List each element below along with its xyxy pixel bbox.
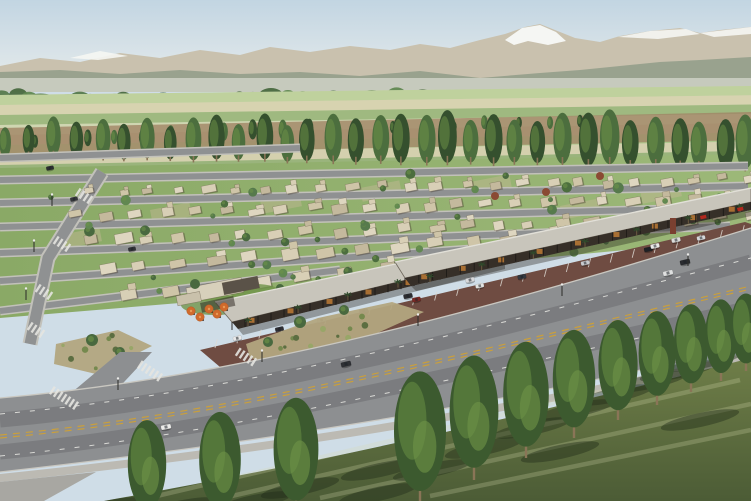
house-roof bbox=[334, 227, 348, 239]
aerial-community-rendering: Aerial 3D architectural rendering of a d… bbox=[0, 0, 751, 501]
house-wing bbox=[320, 180, 326, 185]
yard-tree-highlight bbox=[417, 246, 420, 249]
house-wing bbox=[289, 241, 298, 249]
poplar-trunk bbox=[238, 155, 240, 161]
house-wing bbox=[662, 191, 670, 198]
poplar-trunk bbox=[426, 157, 428, 166]
poplar-highlight bbox=[486, 120, 496, 152]
shrub bbox=[106, 336, 111, 341]
storefront-window-glow bbox=[575, 241, 581, 246]
poplar-highlight bbox=[555, 118, 565, 151]
storefront-window-glow bbox=[652, 224, 658, 229]
house-wing bbox=[601, 191, 607, 197]
poplar-trunk bbox=[470, 157, 472, 165]
clubhouse-tree bbox=[190, 279, 200, 289]
house-wing bbox=[434, 231, 442, 238]
yard-tree-highlight bbox=[472, 187, 475, 190]
yard-tree-highlight bbox=[243, 234, 247, 238]
shrub bbox=[61, 344, 64, 347]
poplar-highlight bbox=[187, 122, 196, 149]
storefront-window-glow bbox=[729, 207, 735, 212]
poplar-highlight bbox=[482, 117, 486, 126]
yard-tree-highlight bbox=[373, 256, 376, 259]
house-wing bbox=[167, 201, 174, 207]
poplar-trunk bbox=[514, 157, 516, 165]
poplar-highlight bbox=[47, 121, 55, 146]
yard-tree-highlight bbox=[141, 227, 145, 231]
umbrella-top bbox=[199, 316, 201, 318]
house-wing bbox=[88, 184, 93, 188]
shrub bbox=[283, 345, 286, 348]
streetlight-head bbox=[117, 377, 119, 379]
storefront-window-glow bbox=[366, 290, 372, 295]
crosswalk bbox=[137, 360, 163, 381]
poplar-highlight bbox=[393, 119, 403, 150]
umbrella-top bbox=[216, 313, 218, 315]
shrub bbox=[278, 346, 283, 351]
poplar-trunk bbox=[380, 156, 382, 164]
yard-tree-highlight bbox=[229, 241, 232, 244]
poplar-highlight bbox=[548, 118, 551, 126]
poplar-highlight bbox=[577, 116, 580, 124]
storefront-window-glow bbox=[327, 299, 333, 304]
poplar-trunk bbox=[400, 156, 402, 165]
poplar-highlight bbox=[673, 124, 683, 155]
poplar-highlight bbox=[718, 125, 728, 156]
scene-svg bbox=[0, 0, 751, 501]
entry-monument bbox=[670, 218, 676, 234]
yard-tree-highlight bbox=[614, 184, 619, 189]
car-glass bbox=[164, 425, 168, 429]
storefront-window-glow bbox=[537, 249, 543, 254]
poplar-highlight bbox=[508, 124, 517, 152]
yard-tree-highlight bbox=[549, 198, 551, 200]
yard-tree-highlight bbox=[407, 170, 412, 175]
poplar-highlight bbox=[692, 127, 701, 156]
yard-tree-highlight bbox=[151, 275, 153, 277]
red-leaf-tree bbox=[596, 172, 604, 180]
yard-tree-highlight bbox=[49, 195, 51, 197]
yard-tree-highlight bbox=[342, 249, 345, 252]
house-roof bbox=[572, 177, 583, 187]
poplar-trunk bbox=[447, 156, 449, 165]
streetlight-head bbox=[33, 239, 35, 241]
house bbox=[572, 176, 584, 187]
house-wing bbox=[562, 213, 570, 219]
yard-tree-highlight bbox=[316, 277, 318, 279]
house-wing bbox=[429, 197, 436, 203]
red-leaf-tree bbox=[491, 192, 499, 200]
poplar-highlight bbox=[326, 119, 336, 150]
poplar-trunk bbox=[287, 157, 289, 164]
poplar-highlight bbox=[737, 120, 748, 155]
yard-tree-highlight bbox=[86, 223, 89, 226]
yard-tree-highlight bbox=[503, 173, 506, 176]
shrub bbox=[359, 314, 365, 320]
yard-tree-highlight bbox=[211, 214, 213, 216]
storefront-window-glow bbox=[613, 232, 619, 237]
poplar-highlight bbox=[0, 131, 6, 150]
poplar-crown-light bbox=[652, 346, 669, 383]
yard-tree-highlight bbox=[280, 270, 284, 274]
poplar-highlight bbox=[439, 116, 449, 150]
house-wing bbox=[368, 199, 375, 205]
yard-tree-highlight bbox=[563, 183, 568, 188]
car-glass bbox=[49, 167, 52, 170]
car-glass bbox=[131, 248, 134, 251]
house-wing bbox=[607, 176, 613, 182]
shrub bbox=[348, 326, 353, 331]
shrub bbox=[82, 346, 88, 352]
shrub bbox=[362, 322, 369, 329]
house-roof bbox=[209, 233, 220, 243]
yard-tree-highlight bbox=[122, 196, 127, 201]
house-wing bbox=[467, 177, 472, 182]
shrub bbox=[320, 326, 326, 332]
umbrella-top bbox=[223, 306, 225, 308]
poplar-highlight bbox=[118, 128, 125, 151]
shrub bbox=[336, 335, 339, 338]
poplar-crown-light bbox=[290, 440, 310, 485]
poplar-highlight bbox=[71, 126, 78, 149]
umbrella-top bbox=[208, 308, 210, 310]
poplar-highlight bbox=[580, 118, 591, 152]
house-wing bbox=[694, 188, 701, 195]
streetlight-head bbox=[261, 349, 263, 351]
poplar-highlight bbox=[141, 122, 149, 148]
poplar-highlight bbox=[601, 115, 612, 150]
poplar-highlight bbox=[300, 123, 309, 150]
yard-tree-highlight bbox=[315, 237, 318, 240]
streetlight-head bbox=[51, 193, 53, 195]
shrub bbox=[94, 366, 98, 370]
poplar-crown-light bbox=[717, 330, 731, 362]
house-wing bbox=[146, 184, 151, 188]
house-wing bbox=[467, 214, 475, 220]
poplar-trunk bbox=[306, 156, 308, 164]
yard-tree-highlight bbox=[381, 186, 384, 189]
poplar-trunk bbox=[562, 157, 564, 166]
poplar-highlight bbox=[249, 121, 254, 134]
poplar-highlight bbox=[349, 123, 358, 151]
house-wing bbox=[127, 283, 136, 291]
house-wing bbox=[235, 184, 240, 188]
yard-tree-highlight bbox=[345, 268, 349, 272]
house-wing bbox=[338, 198, 347, 205]
poplar-highlight bbox=[111, 131, 115, 140]
yard-tree-highlight bbox=[291, 275, 293, 277]
house bbox=[493, 220, 506, 232]
poplar-highlight bbox=[97, 123, 105, 148]
poplar-highlight bbox=[24, 128, 30, 148]
streetlight-head bbox=[25, 287, 27, 289]
poplar-crown-light bbox=[142, 457, 159, 495]
shrub bbox=[68, 356, 74, 362]
house-roof bbox=[493, 220, 505, 231]
streetlight-head bbox=[417, 313, 419, 315]
yard-tree-highlight bbox=[361, 221, 364, 224]
poplar-trunk bbox=[264, 153, 266, 161]
house-wing bbox=[304, 220, 312, 226]
house-roof bbox=[628, 178, 639, 187]
poplar-trunk bbox=[493, 157, 495, 166]
poplar-highlight bbox=[85, 131, 89, 142]
entry-monument bbox=[670, 218, 676, 234]
poplar-highlight bbox=[531, 126, 540, 153]
umbrella-top bbox=[190, 310, 192, 312]
house-wing bbox=[124, 186, 129, 190]
poplar-crown-light bbox=[613, 357, 631, 396]
poplar-trunk bbox=[537, 158, 539, 166]
car-glass bbox=[73, 198, 76, 201]
yard-tree-highlight bbox=[264, 261, 268, 265]
yard-tree-highlight bbox=[663, 199, 666, 202]
yard-tree-highlight bbox=[222, 201, 225, 204]
poplar-crown-light bbox=[214, 451, 233, 493]
poplar-crown-light bbox=[686, 337, 701, 371]
bed-tree-highlight bbox=[296, 318, 302, 324]
poplar-highlight bbox=[464, 125, 473, 152]
shrub bbox=[129, 346, 133, 350]
bed-tree-highlight bbox=[341, 307, 346, 312]
yard-tree-highlight bbox=[282, 239, 286, 243]
bed-tree-highlight bbox=[88, 336, 94, 342]
poplar-crown-light bbox=[520, 385, 541, 431]
yard-tree-highlight bbox=[675, 188, 677, 190]
yard-tree-highlight bbox=[157, 289, 160, 292]
house-wing bbox=[403, 217, 410, 223]
poplar-highlight bbox=[419, 120, 429, 151]
yard-tree-highlight bbox=[249, 189, 253, 193]
poplar-highlight bbox=[623, 125, 632, 154]
poplar-highlight bbox=[258, 118, 267, 147]
yard-tree-highlight bbox=[249, 262, 252, 265]
poplar-crown-light bbox=[413, 421, 436, 473]
poplar-highlight bbox=[374, 120, 383, 150]
storefront-window-glow bbox=[288, 308, 294, 313]
house-wing bbox=[514, 194, 520, 200]
yard-tree-highlight bbox=[455, 215, 458, 218]
poplar-crown-light bbox=[568, 370, 587, 412]
poplar-crown-light bbox=[467, 402, 489, 451]
storefront-window-glow bbox=[498, 257, 504, 262]
house-wing bbox=[434, 176, 442, 182]
shrub bbox=[293, 335, 299, 341]
bed-tree-highlight bbox=[265, 339, 270, 344]
poplar-trunk bbox=[332, 156, 334, 165]
poplar-highlight bbox=[210, 120, 219, 149]
red-leaf-tree bbox=[542, 188, 550, 196]
yard-tree-highlight bbox=[395, 204, 397, 206]
house-wing bbox=[290, 179, 296, 185]
streetlight-head bbox=[687, 253, 689, 255]
yard-tree-highlight bbox=[548, 206, 552, 210]
poplar-highlight bbox=[648, 122, 658, 153]
streetlight-head bbox=[561, 283, 563, 285]
poplar-trunk bbox=[355, 157, 357, 165]
house-wing bbox=[387, 255, 395, 263]
